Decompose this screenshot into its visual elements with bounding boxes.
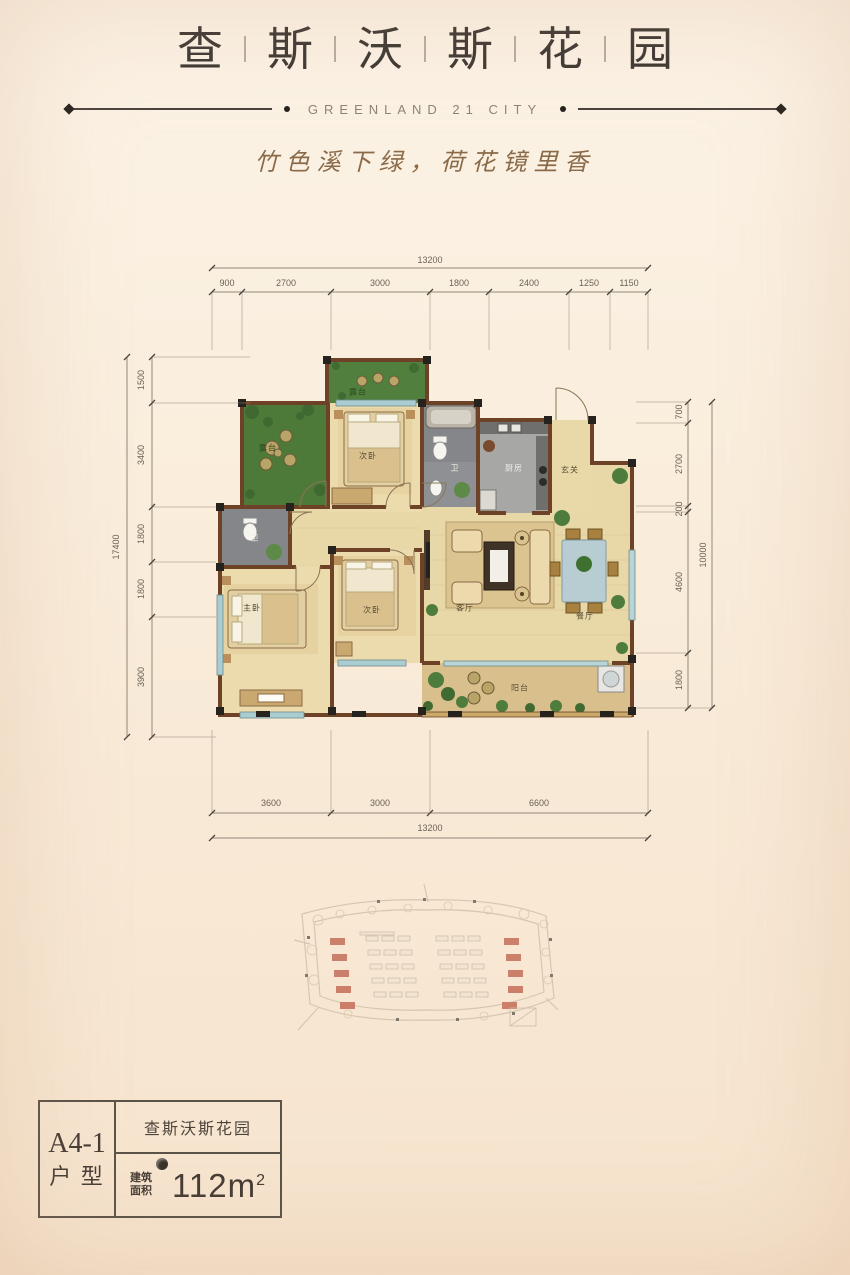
room-label-living-room: 客厅 [456,603,474,614]
dim-right-total: 10000 [698,542,708,567]
dim-left-total: 17400 [111,534,121,559]
dot-icon [560,106,566,112]
room-label-bedroom2-bottom: 次卧 [363,605,381,616]
project-subtitle: GREENLAND 21 CITY [302,102,548,117]
highlighted-buildings [330,938,523,1009]
title-char: 园 [627,26,673,72]
title-char: 斯 [447,26,493,72]
dim-bottom-seg: 6600 [529,798,549,808]
room-label-dining-room: 餐厅 [576,611,594,622]
dim-bottom-seg: 3600 [261,798,281,808]
tagline-calligraphy: 竹色溪下绿，荷花镜里香 [0,142,850,177]
dim-top-seg: 2700 [276,278,296,288]
floorplan-figure: 13200 900 2700 3000 1800 2400 1250 1150 … [0,250,850,870]
room-label-bedroom2-top: 次卧 [359,451,377,462]
dim-left-seg: 1800 [136,524,146,544]
dim-right-seg: 2700 [674,454,684,474]
title-separator [424,36,426,62]
dim-bottom-total: 13200 [417,823,442,833]
room-label-bath2: 卫 [251,533,260,544]
dim-left-seg: 3400 [136,445,146,465]
approx-dot-icon [156,1158,168,1170]
dim-right-seg: 4600 [674,572,684,592]
dim-right-seg: 1800 [674,670,684,690]
area-label-bottom: 面积 [130,1185,152,1198]
rule-line [578,108,777,110]
room-label-balcony: 阳台 [511,683,529,694]
dim-top-seg: 3000 [370,278,390,288]
room-label-bath1: 卫 [451,463,460,474]
built-area: 建筑 面积 112m2 [116,1154,280,1216]
title-char: 沃 [357,26,403,72]
dim-left-seg: 1500 [136,370,146,390]
dim-top-seg: 900 [219,278,234,288]
dim-left-seg: 1800 [136,579,146,599]
unit-details-cell: 查斯沃斯花园 建筑 面积 112m2 [116,1102,280,1216]
site-plan [288,880,568,1072]
area-superscript: 2 [256,1172,266,1189]
unit-type-label: 户 型 [49,1166,105,1188]
rule-line [73,108,272,110]
project-name: 查斯沃斯花园 [116,1102,280,1154]
room-label-master-bedroom: 主卧 [243,603,261,614]
dim-right-seg: 200 [674,501,684,516]
title-char: 花 [537,26,583,72]
dim-bottom-seg: 3000 [370,798,390,808]
brochure-page: { "header": { "title_chars": ["查","斯","沃… [0,0,850,1275]
room-label-terrace-top: 露台 [349,387,367,398]
title-separator [514,36,516,62]
dim-left-seg: 3900 [136,667,146,687]
title-separator [244,36,246,62]
dim-top-seg: 1250 [579,278,599,288]
dim-top-seg: 2400 [519,278,539,288]
room-label-entry: 玄关 [561,465,579,476]
dim-top-seg: 1150 [619,278,638,288]
floorplan-drawing [0,250,850,870]
area-label-top: 建筑 [130,1172,152,1185]
dim-right-seg: 700 [674,404,684,419]
header: 查 斯 沃 斯 花 园 GREENLAND 21 CITY 竹色溪下绿，荷花镜里… [0,0,850,177]
title-char: 查 [177,26,223,72]
title-separator [334,36,336,62]
title-separator [604,36,606,62]
title-char: 斯 [267,26,313,72]
unit-id-cell: A4-1 户 型 [40,1102,116,1216]
area-number: 112m [172,1167,256,1204]
unit-code: A4-1 [48,1130,106,1158]
dim-top-total: 13200 [417,255,442,265]
diamond-end-icon [775,103,786,114]
unit-info-box: A4-1 户 型 查斯沃斯花园 建筑 面积 112m2 [38,1100,282,1218]
dot-icon [284,106,290,112]
dim-top-seg: 1800 [449,278,469,288]
area-value: 112m2 [172,1169,266,1202]
page-title: 查 斯 沃 斯 花 园 [0,26,850,72]
diamond-end-icon [63,103,74,114]
room-label-terrace-left: 露台 [259,443,277,454]
subtitle-rule: GREENLAND 21 CITY [65,102,785,116]
area-label: 建筑 面积 [130,1172,152,1198]
room-label-kitchen: 厨房 [505,463,523,474]
